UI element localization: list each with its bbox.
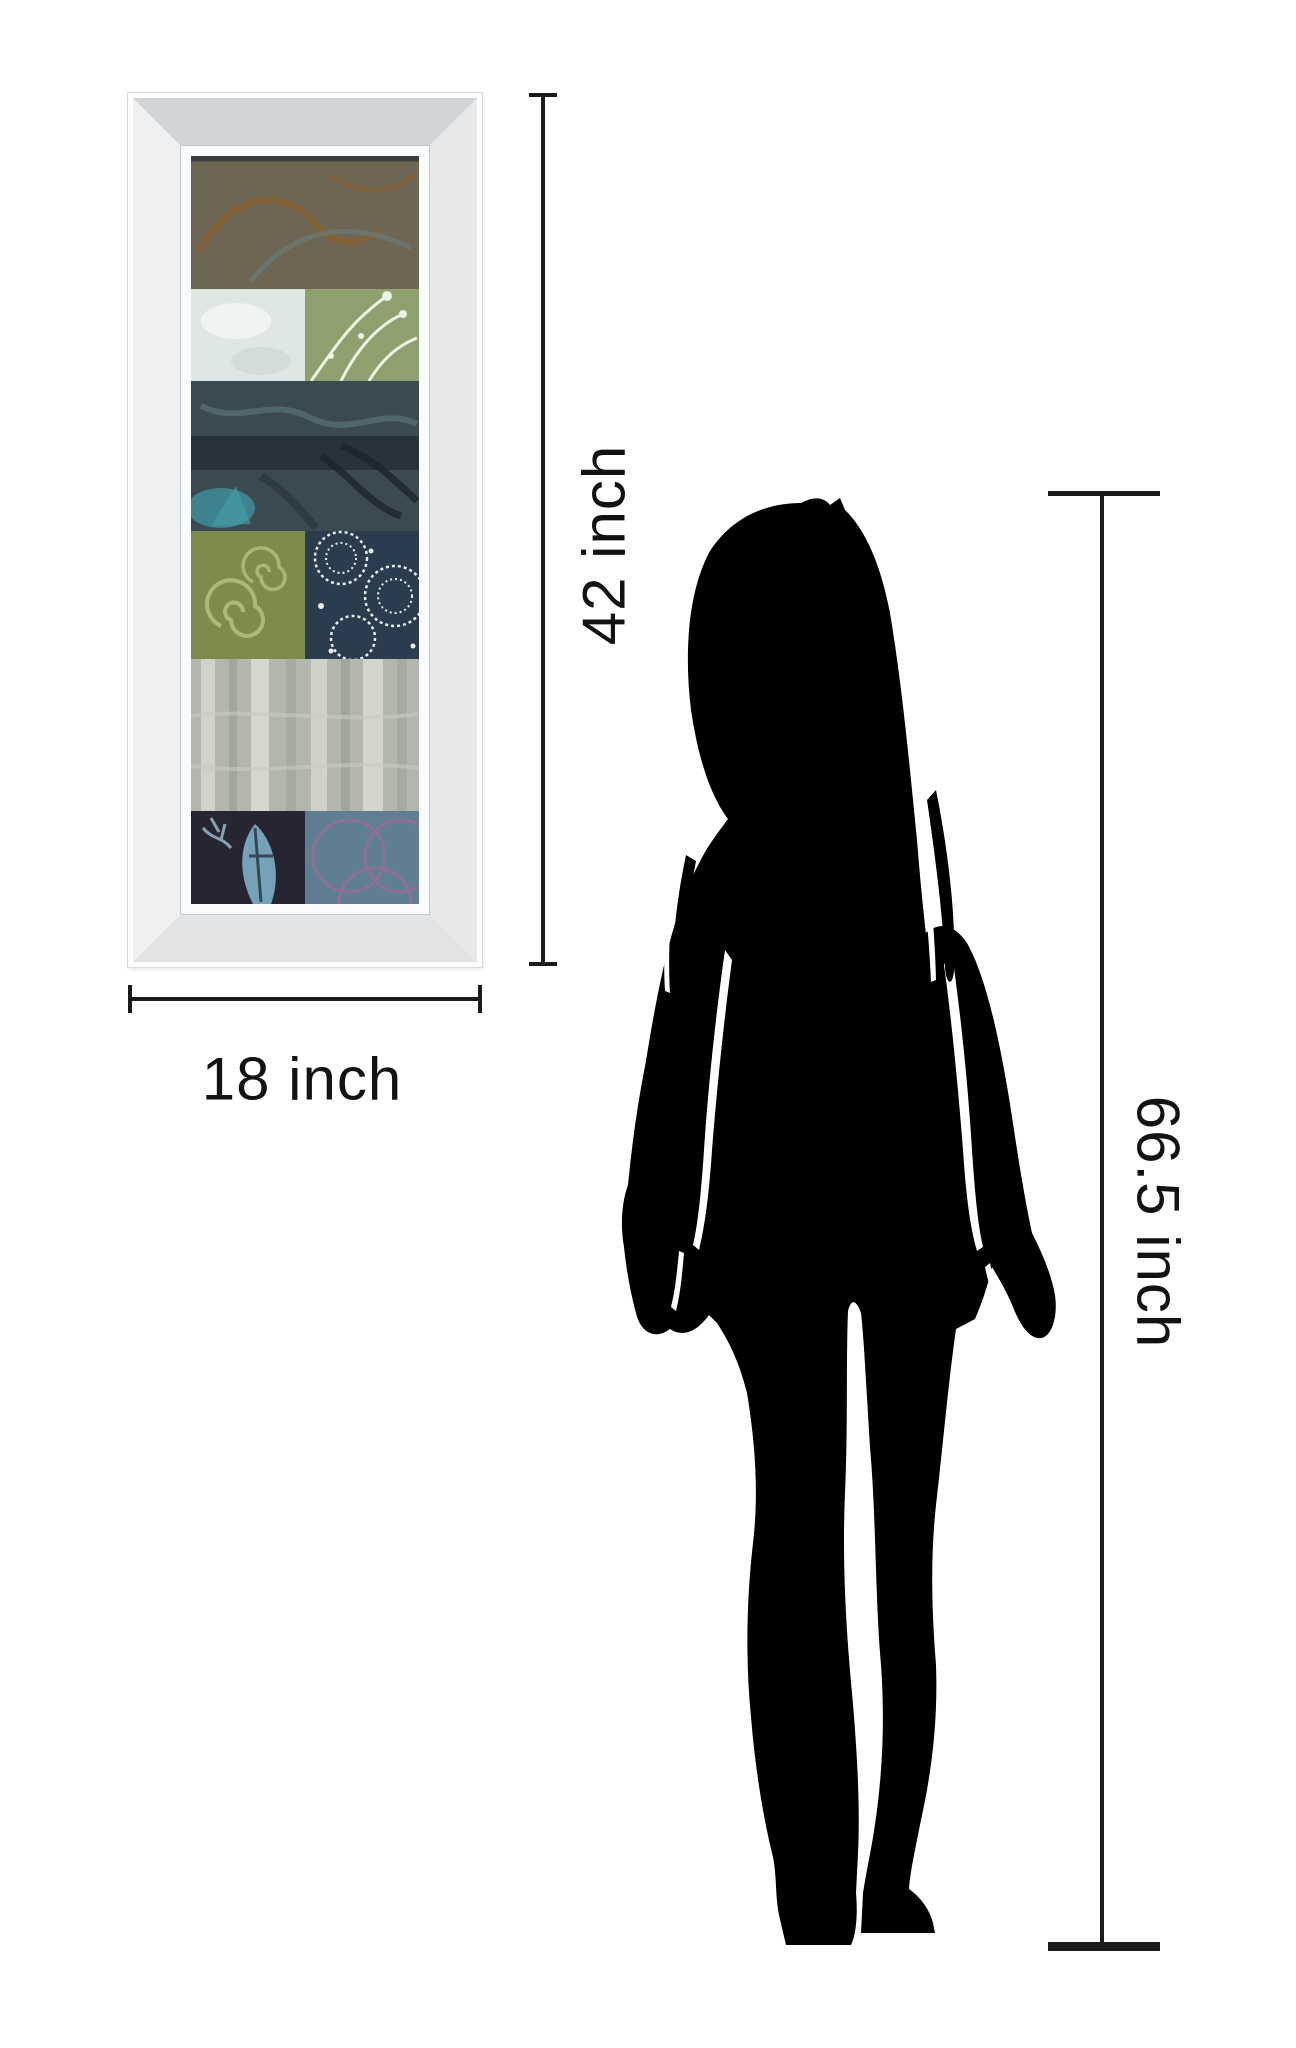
art-height-dimension-line xyxy=(541,93,545,966)
art-band-rust-swirl xyxy=(191,156,419,289)
art-width-left-cap xyxy=(128,985,132,1013)
art-width-right-cap xyxy=(478,985,482,1013)
art-height-top-cap xyxy=(529,93,557,97)
art-band-spiral-lace xyxy=(191,531,419,660)
art-height-bottom-cap xyxy=(529,962,557,966)
art-width-dimension-line xyxy=(128,997,482,1001)
art-width-label: 18 inch xyxy=(202,1045,402,1114)
art-collage xyxy=(191,156,419,904)
art-band-leaf-rings xyxy=(191,811,419,904)
art-band-dark-teal xyxy=(191,381,419,531)
framed-art xyxy=(128,93,482,967)
woman-silhouette xyxy=(618,495,1058,1950)
product-dimension-diagram: 42 inch 18 inch 66.5 inch xyxy=(0,0,1296,2048)
person-height-dimension-line xyxy=(1100,493,1104,1950)
person-height-bottom-cap xyxy=(1048,1942,1160,1951)
art-collage-image xyxy=(191,156,419,904)
art-band-botanical xyxy=(191,289,419,381)
person-height-label: 66.5 inch xyxy=(1124,1096,1193,1349)
art-band-silver xyxy=(191,659,419,811)
person-height-top-cap xyxy=(1048,491,1160,496)
